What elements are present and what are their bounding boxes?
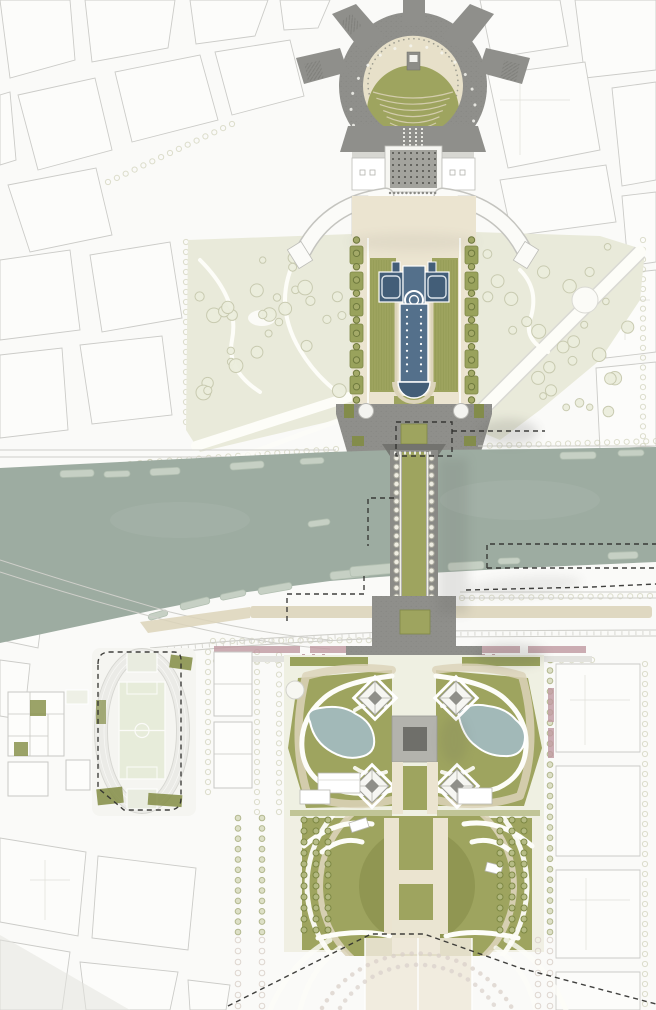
garden-tree <box>575 399 584 408</box>
east-pavilion <box>442 158 475 190</box>
garden-tree <box>604 244 611 251</box>
tree <box>325 839 331 845</box>
sports-court <box>66 690 88 704</box>
garden-tree <box>323 315 331 323</box>
plaza-fountain-west <box>359 404 374 419</box>
fountain-jet <box>420 343 422 345</box>
tree <box>353 344 359 350</box>
tree <box>235 815 241 821</box>
tree <box>509 894 515 900</box>
basketball-court <box>127 652 157 672</box>
pavilion-building <box>458 788 492 804</box>
tree <box>394 499 399 504</box>
tree <box>325 894 331 900</box>
garden-tree <box>540 393 547 400</box>
tree <box>521 872 527 878</box>
fountain-jet <box>406 336 408 338</box>
city-block <box>92 856 196 950</box>
garden-tree <box>585 267 594 276</box>
garden-tree <box>229 359 243 373</box>
city-block <box>556 766 640 856</box>
tower-plaza-core <box>403 727 427 751</box>
garden-tree <box>483 292 493 302</box>
tree <box>547 887 553 893</box>
city-block <box>556 664 640 752</box>
tree <box>547 793 553 799</box>
pavilion-building <box>300 790 330 804</box>
tree <box>468 357 474 363</box>
tree <box>301 861 307 867</box>
residential-block <box>214 722 252 788</box>
tree <box>509 916 515 922</box>
tree <box>259 867 265 873</box>
tree <box>547 877 553 883</box>
tree <box>497 883 503 889</box>
tree <box>521 894 527 900</box>
tree <box>259 929 265 935</box>
garden-tree <box>204 386 212 394</box>
tree <box>259 857 265 863</box>
garden-tree <box>544 362 555 373</box>
moored-boat <box>618 450 644 456</box>
fountain-jet <box>406 357 408 359</box>
tree <box>497 817 503 823</box>
tree <box>394 568 399 573</box>
city-block <box>596 362 656 450</box>
garden-tree <box>592 348 606 362</box>
tree <box>394 525 399 530</box>
water-cannon-channel <box>400 304 428 382</box>
garden-tree <box>289 263 297 271</box>
moored-boat <box>560 452 596 460</box>
moored-boat <box>150 467 180 476</box>
fountain-jet <box>406 350 408 352</box>
city-block <box>188 980 230 1010</box>
tree <box>353 264 359 270</box>
garden-tree <box>563 280 576 293</box>
tree <box>429 473 434 478</box>
tree <box>325 850 331 856</box>
garden-tree <box>260 257 266 263</box>
axis-median-lawn <box>399 818 433 870</box>
fountain-jet <box>406 309 408 311</box>
axis-lawn-south <box>403 766 427 810</box>
tree <box>301 872 307 878</box>
tree <box>301 850 307 856</box>
tree <box>325 883 331 889</box>
planted-median <box>548 688 554 722</box>
tree <box>353 357 359 363</box>
garden-tree <box>557 341 569 353</box>
garden-tree <box>251 346 263 358</box>
tree <box>521 905 527 911</box>
tree <box>497 872 503 878</box>
round-plaza <box>286 681 304 699</box>
tree <box>394 481 399 486</box>
plaza-fountain-east <box>454 404 469 419</box>
tree <box>547 846 553 852</box>
tree <box>468 344 474 350</box>
fountain-jet <box>406 363 408 365</box>
tree <box>259 909 265 915</box>
bridge-lawn-strip <box>402 452 426 618</box>
tree <box>497 916 503 922</box>
tree <box>313 828 319 834</box>
tree <box>353 317 359 323</box>
moored-boat <box>104 471 130 478</box>
tree <box>353 250 359 256</box>
axis-crossbar <box>384 870 448 884</box>
tree <box>509 850 515 856</box>
garden-tree <box>545 385 556 396</box>
garden-tree <box>563 404 570 411</box>
tree <box>547 762 553 768</box>
city-block <box>556 972 640 1010</box>
tree <box>468 397 474 403</box>
tree <box>547 678 553 684</box>
garden-tree <box>265 330 272 337</box>
tree <box>325 828 331 834</box>
tree <box>521 916 527 922</box>
city-block <box>0 838 86 936</box>
tree <box>509 905 515 911</box>
tree <box>325 817 331 823</box>
tree <box>547 866 553 872</box>
garden-tree <box>509 326 517 334</box>
tree <box>394 464 399 469</box>
garden-tree <box>250 284 263 297</box>
garden-tree <box>301 340 312 351</box>
city-block <box>556 870 640 958</box>
plaza-lawn-square <box>401 424 427 444</box>
tree <box>521 927 527 933</box>
tree <box>301 894 307 900</box>
city-block <box>80 336 172 424</box>
garden-tree <box>538 266 550 278</box>
tree <box>301 927 307 933</box>
tree <box>235 919 241 925</box>
tree <box>394 559 399 564</box>
tree <box>394 473 399 478</box>
tree <box>429 464 434 469</box>
fountain-jet <box>420 350 422 352</box>
tree <box>468 264 474 270</box>
tree <box>509 872 515 878</box>
garden-tree <box>332 384 346 398</box>
garden-tree <box>259 310 267 318</box>
tree <box>235 846 241 852</box>
tree <box>547 856 553 862</box>
tree <box>429 585 434 590</box>
garden-tree <box>195 292 204 301</box>
tree <box>509 839 515 845</box>
tree <box>235 898 241 904</box>
tree <box>235 929 241 935</box>
school-court-lawn <box>30 700 46 716</box>
stage-structure-top <box>410 55 418 62</box>
garden-tree <box>622 321 634 333</box>
fountain-jet <box>406 343 408 345</box>
tree <box>429 551 434 556</box>
tree <box>547 814 553 820</box>
tree <box>301 916 307 922</box>
tree <box>521 817 527 823</box>
tree <box>521 850 527 856</box>
garden-tree <box>275 318 283 326</box>
garden-tree <box>603 406 614 417</box>
tree <box>497 850 503 856</box>
tree <box>497 861 503 867</box>
tree <box>429 507 434 512</box>
tree <box>301 839 307 845</box>
tree <box>394 533 399 538</box>
tree <box>325 927 331 933</box>
tree <box>468 330 474 336</box>
tree <box>353 290 359 296</box>
tree <box>301 828 307 834</box>
tree <box>497 927 503 933</box>
plaza-lawn-square <box>400 610 430 634</box>
city-block <box>0 348 68 438</box>
tree <box>259 836 265 842</box>
tree <box>301 905 307 911</box>
tree <box>235 867 241 873</box>
tree <box>394 577 399 582</box>
tree <box>521 839 527 845</box>
fountain-jet <box>406 370 408 372</box>
tree <box>394 551 399 556</box>
tree <box>429 568 434 573</box>
tree <box>313 850 319 856</box>
tree <box>547 825 553 831</box>
garden-tree <box>491 275 504 288</box>
tree <box>468 370 474 376</box>
city-block <box>90 242 182 332</box>
tree <box>325 905 331 911</box>
tree <box>547 908 553 914</box>
moored-boat <box>498 558 520 565</box>
garden-tree <box>483 250 492 259</box>
tree <box>313 927 319 933</box>
garden-tree <box>522 317 532 327</box>
tree <box>468 277 474 283</box>
garden-tree <box>581 321 588 328</box>
tree <box>313 905 319 911</box>
tree <box>509 927 515 933</box>
city-block <box>575 0 656 78</box>
tree <box>353 330 359 336</box>
tree <box>521 883 527 889</box>
tree <box>509 828 515 834</box>
masterplan-canvas <box>0 0 656 1010</box>
fountain-jet <box>406 329 408 331</box>
tree <box>509 883 515 889</box>
fountain-jet <box>420 309 422 311</box>
fountain-jet <box>420 316 422 318</box>
tree <box>325 872 331 878</box>
tree <box>429 525 434 530</box>
tree <box>509 817 515 823</box>
tree <box>394 507 399 512</box>
tree <box>521 861 527 867</box>
planted-median <box>548 728 554 758</box>
tree <box>429 559 434 564</box>
tree <box>313 872 319 878</box>
moored-boat <box>300 457 324 464</box>
west-pavilion <box>352 158 385 190</box>
tree <box>547 804 553 810</box>
tree <box>259 815 265 821</box>
fountain-jet <box>406 316 408 318</box>
tree <box>497 905 503 911</box>
tower-gardens <box>284 655 544 818</box>
garden-tree <box>222 301 234 313</box>
tree <box>547 668 553 674</box>
tree <box>547 772 553 778</box>
tree <box>353 397 359 403</box>
tree <box>313 817 319 823</box>
tree <box>235 909 241 915</box>
tree <box>325 916 331 922</box>
garden-tree <box>332 292 342 302</box>
tree <box>468 384 474 390</box>
tree <box>521 828 527 834</box>
fountain-garden <box>350 196 478 424</box>
garden-tree <box>505 292 518 305</box>
tree <box>497 839 503 845</box>
fountain-jet <box>420 336 422 338</box>
tree <box>547 898 553 904</box>
tree <box>547 919 553 925</box>
tree <box>509 861 515 867</box>
tree <box>353 304 359 310</box>
garden-tree <box>568 356 577 365</box>
tree <box>313 883 319 889</box>
tree <box>394 516 399 521</box>
tree <box>313 861 319 867</box>
tree <box>235 888 241 894</box>
tree <box>259 826 265 832</box>
garden-tree <box>273 294 280 301</box>
garden-tree <box>568 336 580 348</box>
tree <box>429 577 434 582</box>
garden-tree <box>227 347 234 354</box>
tree <box>394 490 399 495</box>
moored-boat <box>60 469 94 477</box>
tree <box>547 835 553 841</box>
tree <box>259 898 265 904</box>
tree <box>353 370 359 376</box>
tree <box>468 304 474 310</box>
tree <box>547 783 553 789</box>
tree <box>259 919 265 925</box>
fountain-jet <box>420 329 422 331</box>
city-block <box>0 250 80 340</box>
tree <box>394 542 399 547</box>
tree <box>497 894 503 900</box>
tree <box>235 877 241 883</box>
tree <box>429 490 434 495</box>
garden-tree <box>338 312 346 320</box>
tree <box>259 846 265 852</box>
garden-tree <box>306 296 315 305</box>
tree <box>497 828 503 834</box>
tree <box>235 836 241 842</box>
tree <box>313 839 319 845</box>
garden-tree <box>587 404 593 410</box>
tree <box>235 826 241 832</box>
tree <box>235 857 241 863</box>
fountain-jet <box>420 363 422 365</box>
tree <box>429 516 434 521</box>
garden-tree <box>605 373 617 385</box>
tree <box>301 817 307 823</box>
tree <box>429 533 434 538</box>
garden-tree <box>532 371 545 384</box>
fountain-jet <box>420 323 422 325</box>
tree <box>429 481 434 486</box>
garden-roundabout <box>572 287 598 313</box>
tree <box>259 877 265 883</box>
garden-tree <box>279 302 292 315</box>
masterplan-stage <box>0 0 656 1010</box>
tree <box>429 542 434 547</box>
tree <box>313 916 319 922</box>
garden-tree <box>298 280 313 295</box>
tree <box>301 883 307 889</box>
tree <box>353 277 359 283</box>
gridded-parvis <box>390 150 437 188</box>
moored-boat <box>608 551 638 559</box>
tree <box>468 317 474 323</box>
tree <box>468 250 474 256</box>
fountain-jet <box>420 357 422 359</box>
garden-tree <box>603 298 610 305</box>
tree <box>429 499 434 504</box>
tree <box>325 861 331 867</box>
garden-tree <box>532 324 546 338</box>
tree <box>313 894 319 900</box>
tree <box>394 585 399 590</box>
tree <box>259 888 265 894</box>
tree <box>468 290 474 296</box>
tree <box>353 384 359 390</box>
tree <box>547 929 553 935</box>
fountain-jet <box>406 323 408 325</box>
fountain-jet <box>420 370 422 372</box>
north-avenue <box>403 0 425 26</box>
